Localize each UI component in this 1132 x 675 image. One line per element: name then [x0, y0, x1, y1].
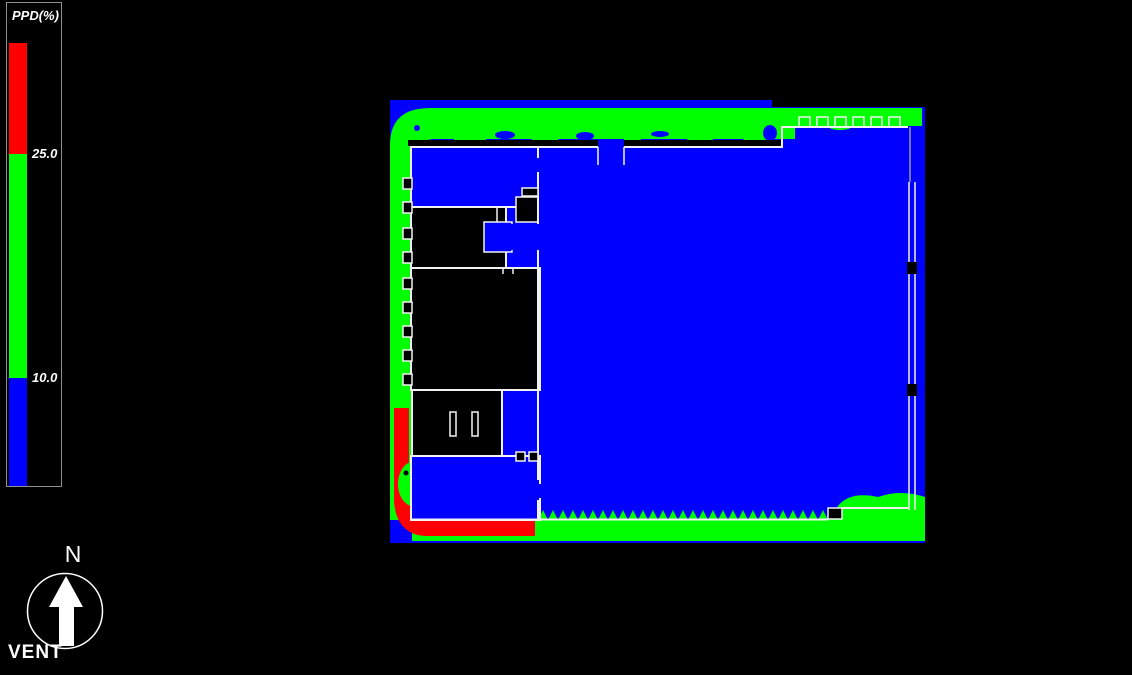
- east-wall-gap2: [907, 384, 917, 396]
- east-wall-gap1: [907, 262, 917, 274]
- ppd-floorplan-map: [0, 0, 1132, 675]
- north-arrow-icon: [49, 576, 83, 646]
- mullion-tab-icon: [403, 302, 412, 313]
- wall-notch-room5-b: [529, 452, 538, 461]
- door-gap-room5: [533, 484, 543, 498]
- door-jamb-room4-b: [472, 412, 478, 436]
- plan-top-right-mask: [772, 98, 925, 107]
- mullion-tab-icon: [403, 252, 412, 263]
- compass-north-label: N: [56, 541, 90, 568]
- room-southwest-blue: [411, 456, 540, 520]
- door-gap-north: [598, 139, 624, 165]
- simulation-canvas: PPD(%) 25.0 10.0: [0, 0, 1132, 675]
- wall-shadow-gap: [408, 140, 782, 146]
- corridor-blue: [484, 222, 512, 252]
- room-lower-black: [412, 390, 502, 456]
- mullion-tab-icon: [403, 178, 412, 189]
- west-facade-mullions: [403, 178, 412, 385]
- wall-notch-room5-a: [516, 452, 525, 461]
- mullion-tab-icon: [403, 326, 412, 337]
- door-jamb-room4-a: [450, 412, 456, 436]
- mullion-tab-icon: [403, 278, 412, 289]
- mullion-tab-icon: [403, 228, 412, 239]
- vent-label: VENT: [8, 642, 63, 664]
- room-middle-black: [411, 268, 540, 390]
- room-block: [411, 147, 540, 520]
- mullion-tab-icon: [403, 350, 412, 361]
- passage-to-hall: [508, 224, 542, 250]
- mullion-tab-icon: [403, 202, 412, 213]
- closet-black: [516, 197, 538, 222]
- south-wall-notch: [828, 508, 842, 519]
- mullion-tab-icon: [403, 374, 412, 385]
- door-symbol-upper: [522, 188, 538, 196]
- door-gap-room1: [533, 158, 543, 172]
